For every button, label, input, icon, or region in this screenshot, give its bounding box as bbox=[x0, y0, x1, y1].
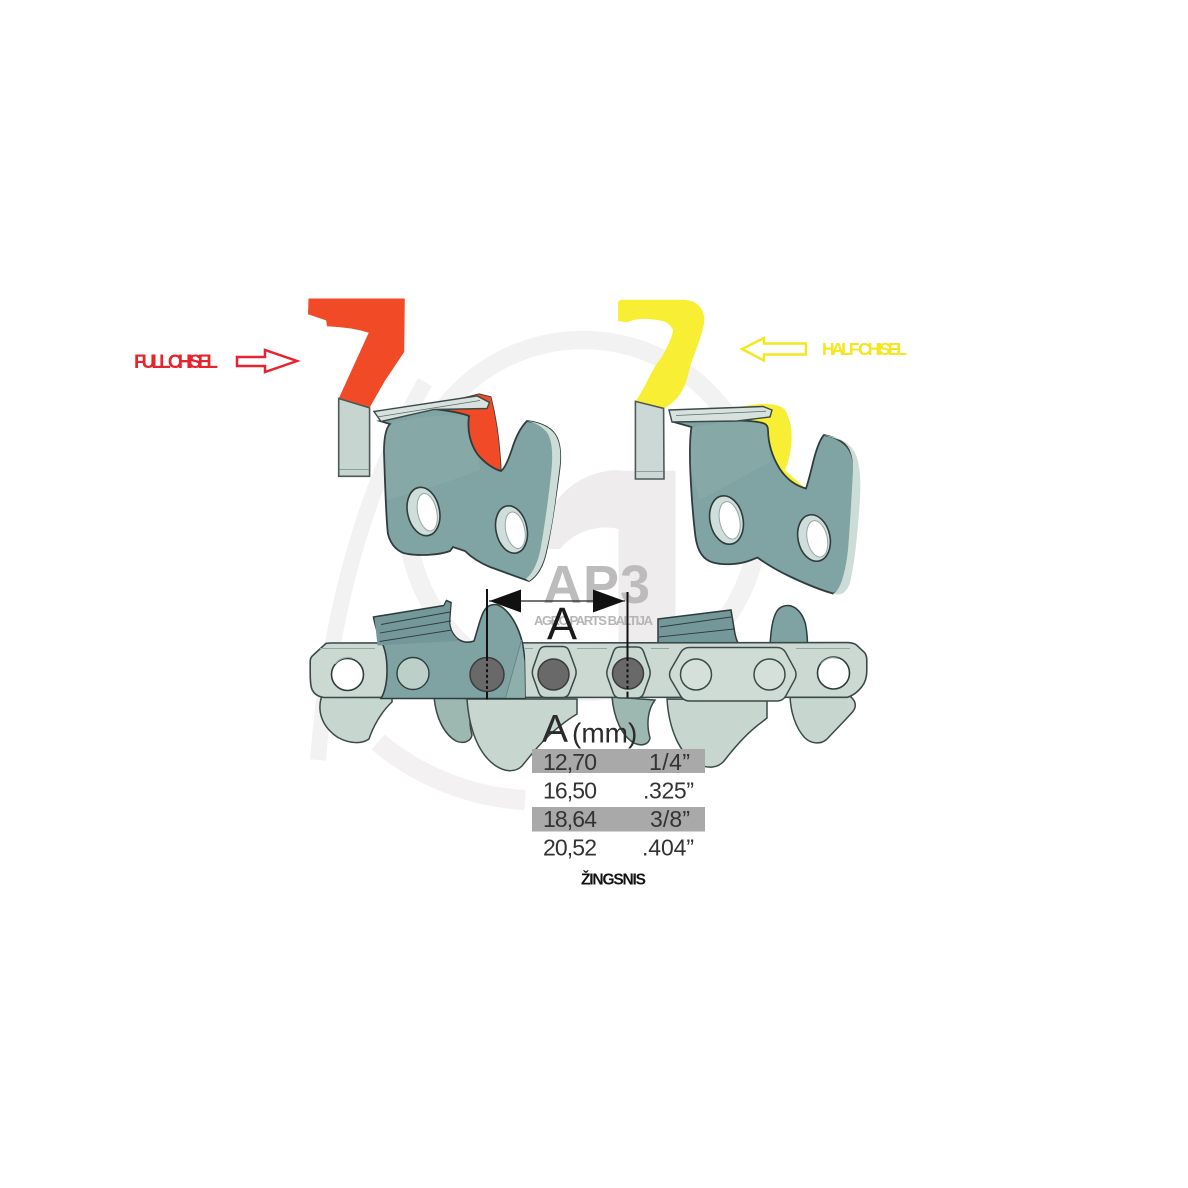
svg-text:A: A bbox=[547, 598, 577, 649]
svg-text:3/8”: 3/8” bbox=[650, 806, 690, 832]
svg-text:18,64: 18,64 bbox=[543, 806, 597, 832]
svg-text:12,70: 12,70 bbox=[543, 749, 597, 775]
svg-text:.404”: .404” bbox=[642, 835, 694, 861]
svg-text:ŽINGSNIS: ŽINGSNIS bbox=[581, 871, 646, 889]
svg-text:HALF CHISEL: HALF CHISEL bbox=[822, 339, 907, 359]
svg-text:(mm): (mm) bbox=[572, 718, 637, 749]
svg-text:20,52: 20,52 bbox=[543, 835, 597, 861]
svg-text:.325”: .325” bbox=[643, 778, 694, 804]
svg-text:FULL CHISEL: FULL CHISEL bbox=[134, 352, 218, 373]
svg-text:16,50: 16,50 bbox=[543, 778, 597, 804]
svg-text:1/4”: 1/4” bbox=[649, 749, 690, 775]
svg-text:A: A bbox=[542, 708, 568, 751]
